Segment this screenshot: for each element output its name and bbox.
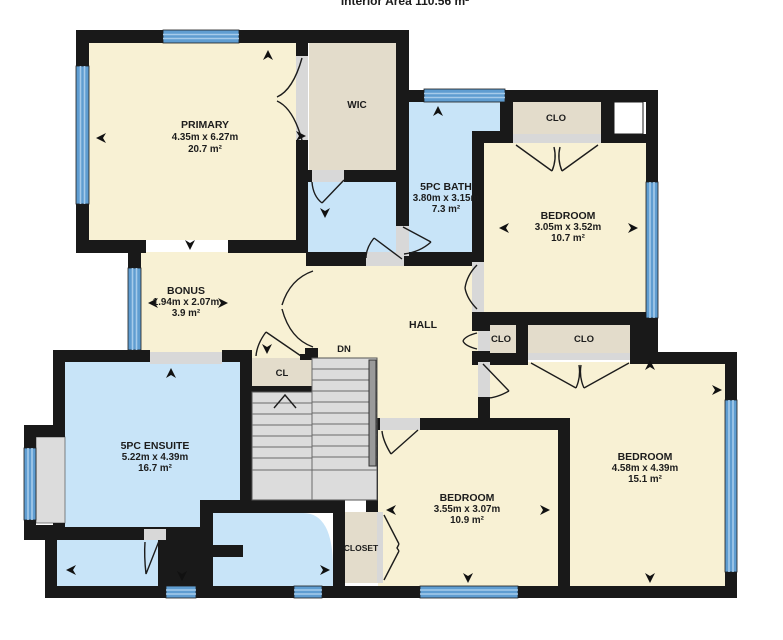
window — [163, 30, 239, 43]
bath-dims: 3.80m x 3.15m — [413, 193, 480, 204]
window — [420, 586, 518, 598]
closet-south-label: CLOSET — [344, 543, 379, 553]
bedroom-se-area: 15.1 m² — [628, 474, 663, 485]
ensuite-dims: 5.22m x 4.39m — [122, 452, 189, 463]
bedroom-ne-area: 10.7 m² — [551, 233, 586, 244]
closet-sill — [528, 353, 630, 360]
closet-mid-small-label: CLO — [491, 334, 511, 345]
primary-area: 20.7 m² — [188, 144, 223, 155]
bonus-dims: 1.94m x 2.07m — [153, 297, 220, 308]
door-opening — [396, 226, 409, 256]
window — [166, 586, 196, 598]
water-closet-floor — [57, 540, 158, 587]
stairs-dn-label: DN — [337, 344, 351, 355]
window — [128, 268, 141, 350]
interior-area-label: Interior Area 110.56 m² — [341, 0, 469, 8]
arrow-down-icon — [185, 240, 195, 250]
bedroom-se-label: BEDROOM — [618, 451, 673, 463]
window — [76, 66, 89, 204]
bonus-area: 3.9 m² — [172, 308, 201, 319]
wic-label: WIC — [347, 100, 366, 111]
floorplan-drawing: Interior Area 110.56 m² PRIMARY 4.35m x … — [0, 0, 783, 640]
closet-top-label: CLO — [546, 113, 566, 124]
bedroom-se-floor-upper — [490, 362, 725, 425]
bedroom-ne-dims: 3.05m x 3.52m — [535, 222, 602, 233]
bath-corridor-floor — [308, 182, 396, 252]
shaft — [614, 102, 643, 134]
primary-label: PRIMARY — [181, 119, 229, 131]
closet-mid-large-label: CLO — [574, 334, 594, 345]
window — [646, 182, 658, 318]
bedroom-south-area: 10.9 m² — [450, 515, 485, 526]
closet-sill — [513, 134, 601, 143]
bay-window-sill — [36, 437, 65, 523]
bedroom-se-dims: 4.58m x 4.39m — [612, 463, 679, 474]
ensuite-label: 5PC ENSUITE — [121, 440, 190, 452]
bedroom-se-floor — [570, 425, 725, 586]
bedroom-south-dims: 3.55m x 3.07m — [434, 504, 501, 515]
primary-dims: 4.35m x 6.27m — [172, 132, 239, 143]
door-opening — [478, 362, 490, 397]
closet-hall-label: CL — [276, 368, 289, 379]
ensuite-area: 16.7 m² — [138, 463, 173, 474]
door-opening — [478, 331, 490, 351]
bedroom-south-label: BEDROOM — [440, 492, 495, 504]
window — [294, 586, 322, 598]
bedroom-ne-label: BEDROOM — [541, 210, 596, 222]
stair-handrail — [369, 360, 376, 466]
bath-area: 7.3 m² — [432, 204, 461, 215]
window — [424, 89, 505, 102]
window — [725, 400, 737, 572]
passage-opening — [150, 352, 222, 364]
hall-label: HALL — [409, 319, 438, 331]
door-opening — [312, 170, 344, 182]
door-opening — [366, 252, 404, 266]
window — [24, 448, 36, 520]
bath-label: 5PC BATH — [420, 181, 472, 193]
door-opening — [380, 418, 420, 430]
bonus-label: BONUS — [167, 285, 205, 297]
door-opening — [144, 529, 166, 540]
bath-floor — [409, 96, 472, 262]
floorplan-page: Interior Area 110.56 m² PRIMARY 4.35m x … — [0, 0, 783, 640]
